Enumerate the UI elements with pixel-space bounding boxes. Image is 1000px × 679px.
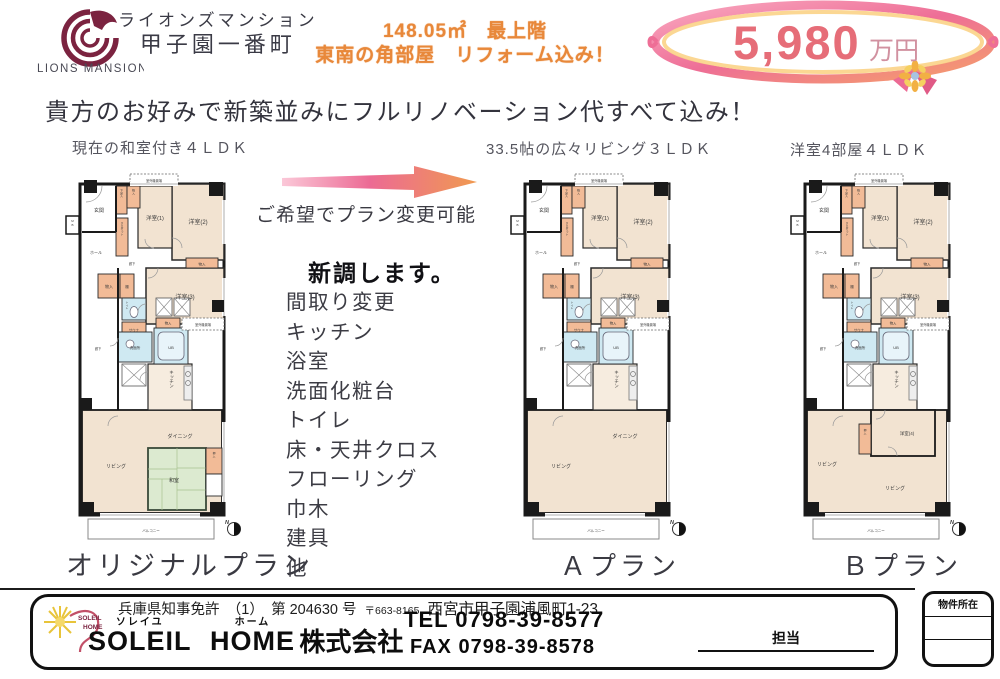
renewal-item: 洗面化粧台 — [286, 377, 440, 407]
brand-name-kana: ライオンズマンション — [118, 10, 318, 31]
stamp-box-label: 物件所在 — [925, 596, 991, 611]
renewal-item: キッチン — [286, 318, 440, 348]
renewal-list: 間取り変更 キッチン 浴室 洗面化粧台 トイレ 床・天井クロス フローリング 巾… — [286, 288, 440, 583]
staff-field: 担当 — [698, 628, 874, 652]
room-label-yoshitsu4: 洋室(4) — [900, 430, 915, 437]
change-arrow-icon — [282, 164, 477, 200]
renewal-item: 間取り変更 — [286, 288, 440, 318]
room-label-dining: ダイニング — [612, 433, 637, 440]
price-ribbon: 5,980 万円 — [645, 0, 1000, 97]
company-suffix: 株式会社 — [299, 627, 403, 657]
renewal-item: トイレ — [286, 406, 440, 436]
room-label-living: リビング — [551, 463, 571, 470]
headline: 貴方のお好みで新築並みにフルリノベーション代すべて込み！ — [45, 92, 756, 127]
stamp-box-line — [925, 616, 991, 617]
company-en-2: HOME — [210, 628, 295, 655]
room-label-living-1: リビング — [817, 461, 837, 468]
caption-original-plan: 現在の和室付き４ＬＤＫ — [72, 137, 248, 158]
plan-name-original: オリジナルプラン — [66, 544, 314, 583]
caption-b-plan: 洋室4部屋４ＬＤＫ — [790, 139, 927, 160]
room-label-washitsu: 和室 — [169, 477, 179, 484]
room-label-oshiire: 押入 — [212, 451, 216, 458]
room-label-dining: ダイニング — [167, 433, 192, 440]
renewal-item: 巾木 — [286, 495, 440, 525]
renewal-item: フローリング — [286, 465, 440, 495]
fax-row: FAX 0798-39-8578 — [410, 636, 595, 659]
price-unit: 万円 — [869, 37, 919, 65]
tel-number: 0798-39-8577 — [455, 607, 604, 632]
flyer-page: 玄関 MB 下足入 物入 クロゼット ホール 廊下 廊下 洋室(1) 洋室(2)… — [0, 0, 1000, 679]
tel-row: TEL 0798-39-8577 — [404, 607, 604, 633]
property-location-stamp-box: 物件所在 — [922, 591, 994, 667]
footer-divider — [0, 588, 915, 590]
arrow-note: ご希望でプラン変更可能 — [256, 200, 476, 227]
property-highlight: 148.05㎡ 最上階 東南の角部屋 リフォーム込み！ — [300, 20, 630, 68]
highlight-line1: 148.05㎡ 最上階 — [300, 20, 630, 44]
tel-label: TEL — [404, 607, 448, 632]
brand-name: ライオンズマンション 甲子園一番町 — [118, 10, 318, 59]
room-label-living-2: リビング — [885, 485, 905, 492]
room-label-oshiire: 押入 — [863, 428, 867, 435]
highlight-line2: 東南の角部屋 リフォーム込み！ — [300, 44, 630, 68]
plan-name-a: Ａプラン — [560, 546, 680, 583]
company-en-1: SOLEIL — [88, 628, 192, 655]
stamp-box-line — [925, 639, 991, 640]
brand-name-building: 甲子園一番町 — [118, 31, 318, 59]
caption-a-plan: 33.5帖の広々リビング３ＬＤＫ — [486, 138, 711, 159]
license-number: 兵庫県知事免許 （1） 第 204630 号 — [118, 602, 357, 618]
floorplan-a: ダイニング リビング — [505, 172, 690, 557]
fax-number: 0798-39-8578 — [458, 636, 595, 658]
price-amount: 5,980 — [733, 16, 861, 69]
plan-name-b: Ｂプラン — [842, 546, 962, 583]
floorplan-original: ダイニング リビング 和室 押入 — [60, 172, 245, 557]
fax-label: FAX — [410, 636, 452, 658]
room-label-living: リビング — [106, 463, 126, 470]
renewal-item: 床・天井クロス — [286, 436, 440, 466]
company-name: ソレイユSOLEIL ホームHOME 株式会社 — [88, 618, 403, 655]
renewal-item: 浴室 — [286, 347, 440, 377]
logo-caption: LIONS MANSION — [37, 63, 144, 75]
renewal-title: 新調します。 — [308, 254, 456, 288]
floorplan-b: 洋室(4) 押入 リビング リビング — [785, 172, 970, 557]
lion-head-icon — [90, 11, 117, 30]
